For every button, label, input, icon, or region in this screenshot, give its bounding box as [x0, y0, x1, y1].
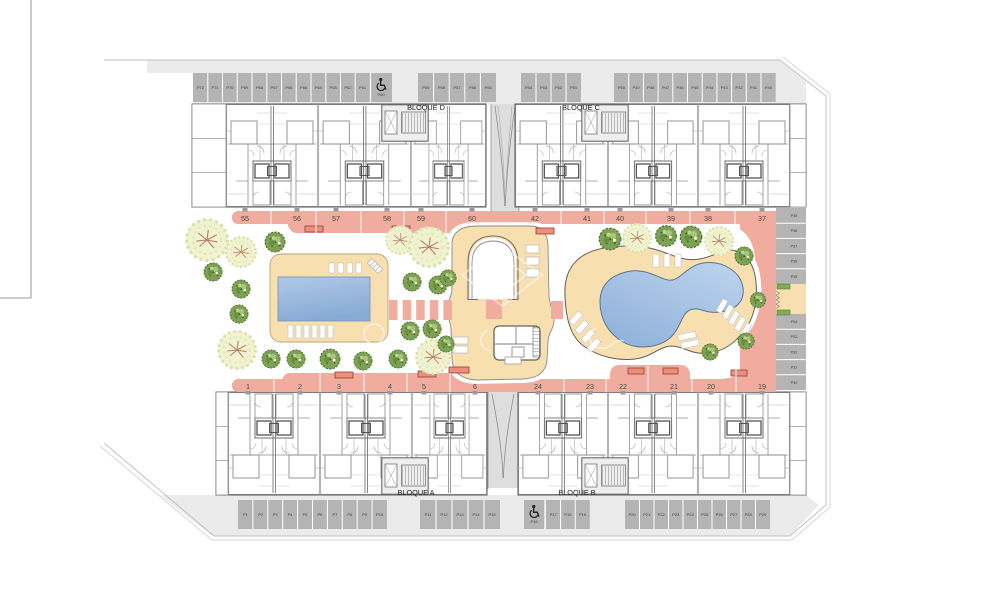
- svg-text:P27: P27: [730, 512, 738, 517]
- svg-text:5: 5: [422, 382, 426, 391]
- svg-text:P57: P57: [453, 85, 461, 90]
- svg-text:P40: P40: [765, 85, 773, 90]
- svg-text:40: 40: [616, 214, 624, 223]
- svg-text:P52: P52: [555, 85, 563, 90]
- svg-text:23: 23: [586, 382, 594, 391]
- svg-text:P21: P21: [643, 512, 651, 517]
- svg-text:P5: P5: [303, 512, 309, 517]
- svg-text:P11: P11: [425, 512, 433, 517]
- svg-text:39: 39: [667, 214, 675, 223]
- svg-text:21: 21: [670, 382, 678, 391]
- svg-text:P12: P12: [440, 512, 448, 517]
- svg-text:20: 20: [707, 382, 715, 391]
- svg-text:P62: P62: [344, 85, 352, 90]
- svg-text:P19: P19: [579, 512, 587, 517]
- svg-text:P35: P35: [791, 275, 798, 279]
- svg-text:P4: P4: [288, 512, 294, 517]
- svg-text:P2: P2: [258, 512, 264, 517]
- svg-text:P39: P39: [791, 214, 798, 218]
- svg-text:P10: P10: [376, 512, 384, 517]
- svg-text:2: 2: [298, 382, 302, 391]
- svg-text:P3: P3: [273, 512, 279, 517]
- svg-text:6: 6: [473, 382, 477, 391]
- svg-text:P36: P36: [791, 260, 798, 264]
- svg-text:P41: P41: [750, 85, 758, 90]
- svg-text:P1: P1: [243, 512, 249, 517]
- svg-text:P26: P26: [716, 512, 724, 517]
- svg-text:P49: P49: [632, 85, 640, 90]
- svg-text:P42: P42: [735, 85, 743, 90]
- svg-text:BLOQUE A: BLOQUE A: [398, 488, 435, 497]
- svg-text:24: 24: [534, 382, 542, 391]
- svg-text:BLOQUE C: BLOQUE C: [562, 103, 600, 112]
- svg-text:P37: P37: [791, 244, 798, 248]
- svg-text:P66: P66: [285, 85, 293, 90]
- svg-text:P16: P16: [530, 519, 538, 524]
- svg-text:P63: P63: [330, 85, 338, 90]
- svg-text:P8: P8: [347, 512, 353, 517]
- svg-text:P70: P70: [226, 85, 234, 90]
- svg-text:60: 60: [468, 214, 476, 223]
- svg-text:P18: P18: [564, 512, 572, 517]
- svg-text:P51: P51: [570, 85, 578, 90]
- svg-text:P15: P15: [488, 512, 496, 517]
- svg-text:P65: P65: [300, 85, 308, 90]
- svg-text:P25: P25: [701, 512, 709, 517]
- svg-text:P67: P67: [271, 85, 279, 90]
- svg-text:P59: P59: [422, 85, 430, 90]
- svg-text:P14: P14: [472, 512, 480, 517]
- svg-text:41: 41: [583, 214, 591, 223]
- svg-text:P53: P53: [540, 85, 548, 90]
- svg-text:22: 22: [619, 382, 627, 391]
- svg-text:P46: P46: [677, 85, 685, 90]
- svg-text:P43: P43: [721, 85, 729, 90]
- svg-text:P28: P28: [745, 512, 753, 517]
- svg-text:P22: P22: [658, 512, 666, 517]
- svg-text:P7: P7: [332, 512, 338, 517]
- svg-text:P64: P64: [315, 85, 323, 90]
- svg-text:P45: P45: [691, 85, 699, 90]
- svg-text:P31: P31: [791, 366, 798, 370]
- svg-text:P30: P30: [791, 381, 798, 385]
- svg-text:P29: P29: [759, 512, 767, 517]
- svg-text:P20: P20: [629, 512, 637, 517]
- svg-text:P9: P9: [362, 512, 368, 517]
- svg-text:P71: P71: [212, 85, 220, 90]
- svg-text:56: 56: [293, 214, 301, 223]
- svg-text:1: 1: [246, 382, 250, 391]
- svg-text:P56: P56: [469, 85, 477, 90]
- svg-text:P38: P38: [791, 229, 798, 233]
- svg-text:P50: P50: [618, 85, 626, 90]
- svg-text:P72: P72: [197, 85, 205, 90]
- svg-text:57: 57: [332, 214, 340, 223]
- svg-text:P32: P32: [791, 350, 798, 354]
- svg-text:P54: P54: [525, 85, 533, 90]
- svg-text:BLOQUE D: BLOQUE D: [407, 103, 445, 112]
- svg-text:37: 37: [758, 214, 766, 223]
- svg-text:P60: P60: [377, 92, 385, 97]
- svg-text:P6: P6: [317, 512, 323, 517]
- svg-text:P17: P17: [550, 512, 558, 517]
- svg-text:P34: P34: [791, 320, 798, 324]
- svg-text:38: 38: [704, 214, 712, 223]
- svg-text:19: 19: [758, 382, 766, 391]
- svg-text:4: 4: [388, 382, 392, 391]
- svg-text:59: 59: [417, 214, 425, 223]
- svg-text:P44: P44: [706, 85, 714, 90]
- svg-text:58: 58: [383, 214, 391, 223]
- svg-text:3: 3: [337, 382, 341, 391]
- svg-text:P48: P48: [647, 85, 655, 90]
- svg-text:P61: P61: [359, 85, 367, 90]
- svg-text:P24: P24: [687, 512, 695, 517]
- svg-text:BLOQUE B: BLOQUE B: [558, 488, 595, 497]
- svg-text:P13: P13: [456, 512, 464, 517]
- svg-text:55: 55: [241, 214, 249, 223]
- svg-text:P55: P55: [485, 85, 493, 90]
- svg-text:P58: P58: [438, 85, 446, 90]
- svg-text:P47: P47: [662, 85, 670, 90]
- svg-text:P33: P33: [791, 335, 798, 339]
- svg-text:P68: P68: [256, 85, 264, 90]
- svg-text:42: 42: [531, 214, 539, 223]
- svg-text:P23: P23: [672, 512, 680, 517]
- svg-text:P69: P69: [241, 85, 249, 90]
